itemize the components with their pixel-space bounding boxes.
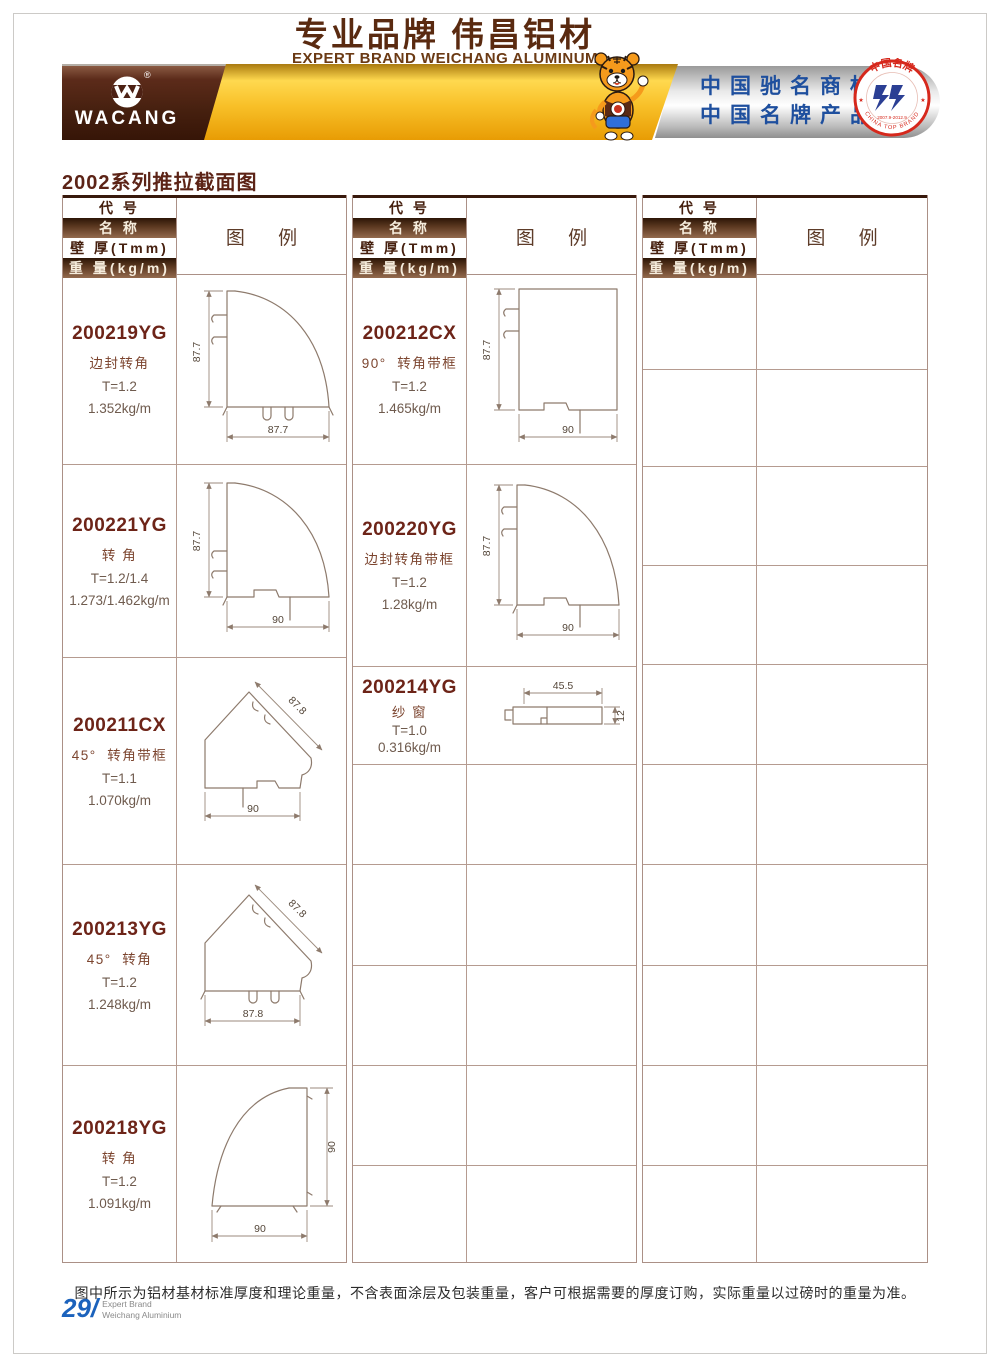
table-row: 200218YG 转 角 T=1.2 1.091kg/m 90 90 bbox=[63, 1066, 346, 1262]
star-icon: ★ bbox=[858, 97, 863, 104]
footer-brand-top: Expert Brand bbox=[102, 1299, 152, 1309]
profile-diagram-cell: 87.8 90 bbox=[177, 658, 346, 864]
header-thickness: 壁 厚(Tmm) bbox=[63, 238, 176, 258]
table-row-empty bbox=[643, 566, 927, 665]
product-code: 200221YG bbox=[72, 515, 167, 537]
table-row-empty bbox=[643, 665, 927, 765]
table-row: 200211CX 45° 转角带框 T=1.1 1.070kg/m 87.8 bbox=[63, 658, 346, 865]
footer-note: 图中所示为铝材基材标准厚度和理论重量，不含表面涂层及包装重量，客户可根据需要的厚… bbox=[62, 1283, 928, 1303]
table-row-empty bbox=[353, 1166, 636, 1262]
dim-label-h: 90 bbox=[254, 1223, 266, 1235]
page-title: 2002系列推拉截面图 bbox=[62, 166, 258, 195]
group1-header: 代 号 名 称 壁 厚(Tmm) 重 量(kg/m) 图 例 bbox=[63, 195, 346, 275]
dim-label-v: 87.7 bbox=[191, 531, 203, 552]
product-code: 200213YG bbox=[72, 919, 167, 941]
table-row-empty bbox=[353, 765, 636, 865]
product-thickness: T=1.2/1.4 bbox=[91, 571, 148, 586]
profile-drawing: 87.8 87.8 bbox=[177, 865, 346, 1065]
dim-label-h: 87.8 bbox=[243, 1008, 264, 1020]
header-diagram: 图 例 bbox=[177, 198, 346, 274]
table-row: 200220YG 边封转角带框 T=1.2 1.28kg/m bbox=[353, 465, 636, 667]
china-top-brand-badge: 中国名牌 CHINA TOP BRAND ★ ★ 2007.9-2012.9 bbox=[852, 58, 932, 138]
header-code: 代 号 bbox=[643, 198, 756, 218]
product-thickness: T=1.2 bbox=[392, 379, 427, 394]
product-weight: 0.316kg/m bbox=[378, 740, 441, 755]
table-row-empty bbox=[643, 1166, 927, 1262]
product-code: 200214YG bbox=[362, 677, 457, 699]
product-code: 200220YG bbox=[362, 519, 457, 541]
product-info: 200214YG 纱 窗 T=1.0 0.316kg/m bbox=[353, 667, 467, 764]
product-weight: 1.248kg/m bbox=[88, 997, 151, 1012]
product-name: 边封转角带框 bbox=[365, 548, 455, 568]
product-thickness: T=1.1 bbox=[102, 771, 137, 786]
product-name: 90° 转角带框 bbox=[362, 352, 457, 372]
product-name: 转 角 bbox=[102, 1147, 137, 1167]
tiger-mascot-icon bbox=[586, 48, 650, 142]
table-row-empty bbox=[353, 966, 636, 1066]
product-thickness: T=1.2 bbox=[392, 575, 427, 590]
profile-diagram-cell: 87.7 90 bbox=[177, 465, 346, 657]
header-thickness: 壁 厚(Tmm) bbox=[353, 238, 466, 258]
header-thickness: 壁 厚(Tmm) bbox=[643, 238, 756, 258]
profile-diagram-cell: 87.7 90 bbox=[467, 465, 636, 666]
footer-brand-bottom: Weichang Aluminium bbox=[102, 1310, 181, 1320]
header-code: 代 号 bbox=[63, 198, 176, 218]
product-info: 200221YG 转 角 T=1.2/1.4 1.273/1.462kg/m bbox=[63, 465, 177, 657]
product-weight: 1.465kg/m bbox=[378, 401, 441, 416]
dim-label-v: 87.7 bbox=[191, 342, 203, 363]
dim-label-h: 90 bbox=[272, 614, 284, 626]
table-group-1: 代 号 名 称 壁 厚(Tmm) 重 量(kg/m) 图 例 200219YG … bbox=[62, 195, 347, 1263]
product-weight: 1.091kg/m bbox=[88, 1196, 151, 1211]
table-row-empty bbox=[353, 1066, 636, 1166]
star-icon: ★ bbox=[920, 97, 925, 104]
product-name: 边封转角 bbox=[90, 352, 150, 372]
profile-diagram-cell: 90 90 bbox=[177, 1066, 346, 1262]
table-row: 200214YG 纱 窗 T=1.0 0.316kg/m 45.5 12 bbox=[353, 667, 636, 765]
page-number-block: 29/ Expert Brand Weichang Aluminium bbox=[62, 1297, 181, 1321]
logo-wordmark: WACANG bbox=[72, 108, 182, 130]
product-code: 200212CX bbox=[363, 323, 457, 345]
dim-label-h: 87.7 bbox=[268, 424, 289, 436]
dim-label-v: 87.7 bbox=[481, 536, 493, 557]
product-info: 200219YG 边封转角 T=1.2 1.352kg/m bbox=[63, 275, 177, 464]
dim-label-h: 45.5 bbox=[553, 680, 574, 692]
table-row-empty bbox=[643, 865, 927, 966]
table-row-empty bbox=[643, 370, 927, 467]
product-info: 200211CX 45° 转角带框 T=1.1 1.070kg/m bbox=[63, 658, 177, 864]
profile-drawing: 90 90 bbox=[177, 1066, 346, 1261]
product-thickness: T=1.2 bbox=[102, 975, 137, 990]
product-name: 45° 转角带框 bbox=[72, 744, 167, 764]
profile-diagram-cell: 87.7 87.7 bbox=[177, 275, 346, 464]
table-group-2: 代 号 名 称 壁 厚(Tmm) 重 量(kg/m) 图 例 200212CX … bbox=[352, 195, 637, 1263]
page-number: 29/ bbox=[62, 1297, 98, 1320]
table-group-3: 代 号 名 称 壁 厚(Tmm) 重 量(kg/m) 图 例 bbox=[642, 195, 928, 1263]
profile-drawing: 87.7 87.7 bbox=[177, 275, 346, 464]
badge-dates: 2007.9-2012.9 bbox=[877, 115, 907, 120]
header-name: 名 称 bbox=[63, 218, 176, 238]
table-row: 200213YG 45° 转角 T=1.2 1.248kg/m bbox=[63, 865, 346, 1066]
group2-header: 代 号 名 称 壁 厚(Tmm) 重 量(kg/m) 图 例 bbox=[353, 195, 636, 275]
product-name: 转 角 bbox=[102, 544, 137, 564]
product-name: 纱 窗 bbox=[392, 701, 427, 721]
product-thickness: T=1.2 bbox=[102, 1174, 137, 1189]
product-info: 200213YG 45° 转角 T=1.2 1.248kg/m bbox=[63, 865, 177, 1065]
footer-brand: Expert Brand Weichang Aluminium bbox=[102, 1297, 181, 1321]
table-row: 200221YG 转 角 T=1.2/1.4 1.273/1.462kg/m bbox=[63, 465, 346, 658]
product-code: 200219YG bbox=[72, 323, 167, 345]
product-code: 200211CX bbox=[73, 715, 166, 737]
profile-drawing: 87.7 90 bbox=[467, 275, 636, 464]
profile-drawing: 87.7 90 bbox=[177, 465, 346, 657]
profile-drawing: 45.5 12 bbox=[467, 667, 636, 764]
dim-label-v: 90 bbox=[326, 1141, 338, 1153]
table-row-empty bbox=[643, 275, 927, 370]
product-info: 200220YG 边封转角带框 T=1.2 1.28kg/m bbox=[353, 465, 467, 666]
product-info: 200218YG 转 角 T=1.2 1.091kg/m bbox=[63, 1066, 177, 1262]
dim-label-v: 87.7 bbox=[481, 340, 493, 361]
table-row: 200219YG 边封转角 T=1.2 1.352kg/m 87. bbox=[63, 275, 346, 465]
table-row-empty bbox=[353, 865, 636, 966]
product-thickness: T=1.0 bbox=[392, 723, 427, 738]
profile-diagram-cell: 45.5 12 bbox=[467, 667, 636, 764]
profile-diagram-cell: 87.7 90 bbox=[467, 275, 636, 464]
header-name: 名 称 bbox=[353, 218, 466, 238]
header-name: 名 称 bbox=[643, 218, 756, 238]
group3-header: 代 号 名 称 壁 厚(Tmm) 重 量(kg/m) 图 例 bbox=[643, 195, 927, 275]
table-row-empty bbox=[643, 1066, 927, 1166]
profile-drawing: 87.7 90 bbox=[467, 465, 636, 666]
table-row-empty bbox=[643, 765, 927, 865]
dim-label-h: 90 bbox=[562, 622, 574, 634]
product-thickness: T=1.2 bbox=[102, 379, 137, 394]
product-weight: 1.070kg/m bbox=[88, 793, 151, 808]
product-weight: 1.273/1.462kg/m bbox=[69, 593, 170, 608]
header-code: 代 号 bbox=[353, 198, 466, 218]
dim-label-h: 90 bbox=[247, 803, 259, 815]
profile-drawing: 87.8 90 bbox=[177, 658, 346, 864]
table-row: 200212CX 90° 转角带框 T=1.2 1.465kg/m 87.7 bbox=[353, 275, 636, 465]
product-info: 200212CX 90° 转角带框 T=1.2 1.465kg/m bbox=[353, 275, 467, 464]
product-name: 45° 转角 bbox=[87, 948, 152, 968]
table-row-empty bbox=[643, 467, 927, 566]
dim-label-h: 90 bbox=[562, 424, 574, 436]
registered-mark: ® bbox=[144, 70, 151, 80]
dim-label-d: 87.8 bbox=[286, 694, 309, 717]
header-diagram: 图 例 bbox=[467, 198, 636, 274]
table-row-empty bbox=[643, 966, 927, 1066]
header-diagram: 图 例 bbox=[757, 198, 927, 274]
profile-diagram-cell: 87.8 87.8 bbox=[177, 865, 346, 1065]
product-weight: 1.28kg/m bbox=[382, 597, 438, 612]
product-weight: 1.352kg/m bbox=[88, 401, 151, 416]
dim-label-d: 87.8 bbox=[286, 897, 309, 920]
product-code: 200218YG bbox=[72, 1118, 167, 1140]
dim-label-v: 12 bbox=[615, 710, 627, 722]
